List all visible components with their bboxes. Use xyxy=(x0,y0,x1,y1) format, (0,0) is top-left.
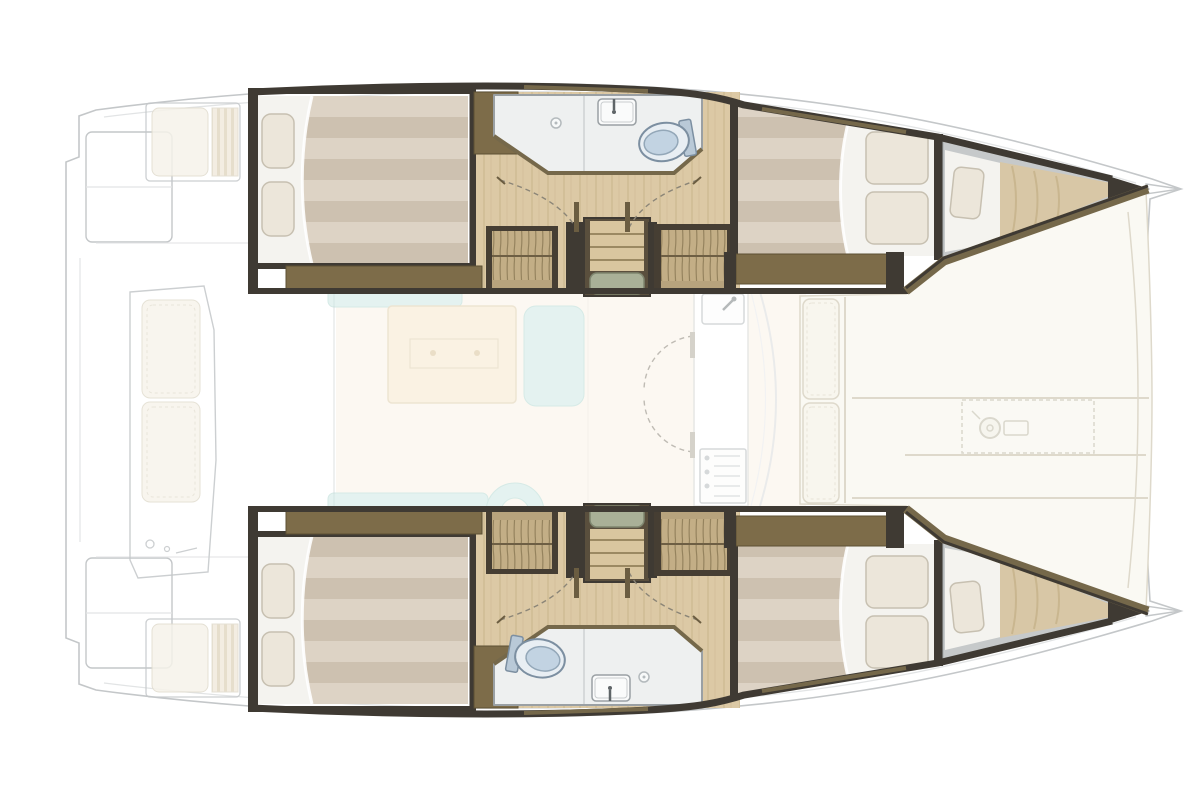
door-leaf-bottom xyxy=(690,432,695,458)
bench-cushion xyxy=(152,108,208,176)
pillow-1 xyxy=(262,114,294,168)
sink-faucet-base xyxy=(732,297,737,302)
wardrobe-base xyxy=(492,280,552,289)
pillow-2 xyxy=(262,182,294,236)
cockpit-bench-top xyxy=(146,103,240,181)
cockpit-aft-bench xyxy=(130,286,216,578)
forepeak-pillow xyxy=(949,167,984,220)
sink xyxy=(598,99,636,125)
hull-aft-wall xyxy=(248,90,258,294)
forward-bench-cushion-2 xyxy=(803,403,839,503)
table-fitting-2 xyxy=(474,350,480,356)
cockpit-bench-bottom xyxy=(146,619,240,697)
windlass-icon xyxy=(980,418,1000,438)
stove-knob-1 xyxy=(705,456,710,461)
door-leaf-right xyxy=(625,202,630,232)
fwd-cabin-right-wall xyxy=(934,134,943,260)
fwd-block-left xyxy=(724,252,736,292)
fwd-berth-mattress xyxy=(736,106,854,256)
cockpit-fitting-1 xyxy=(146,540,154,548)
wardrobe-right xyxy=(654,224,734,292)
fwd-cabin-left-wall xyxy=(730,100,738,258)
cockpit-fitting-2 xyxy=(165,547,170,552)
fwd-pillow-2 xyxy=(866,192,928,244)
berth-step xyxy=(286,266,482,290)
door-leaf-left xyxy=(574,202,579,232)
fwd-berth-shelf xyxy=(736,254,888,284)
aft-berth-mattress xyxy=(298,96,468,264)
dinette-table xyxy=(388,306,516,403)
windlass-locker xyxy=(962,400,1094,453)
wardrobe-left xyxy=(486,226,558,292)
stove-knob-3 xyxy=(705,484,710,489)
sink-faucet-base xyxy=(608,686,612,690)
cockpit-fitting-3 xyxy=(176,548,197,553)
fwd-block-right xyxy=(886,252,904,290)
fwd-pillow-1 xyxy=(866,132,928,184)
shower-drain-dot xyxy=(643,676,646,679)
table-fitting-1 xyxy=(430,350,436,356)
companionway-stairs xyxy=(584,218,650,296)
floor-plan-svg xyxy=(0,0,1200,800)
catamaran-floor-plan xyxy=(0,0,1200,800)
forward-bench-cushion-1 xyxy=(803,299,839,399)
bench-slats xyxy=(212,108,238,176)
salon xyxy=(328,288,806,512)
door-leaf-top xyxy=(690,332,695,358)
bow-sprit xyxy=(1146,184,1180,194)
bench-cushion xyxy=(152,624,208,692)
galley xyxy=(694,290,748,506)
sink-faucet-base xyxy=(612,110,616,114)
bench-slats xyxy=(212,624,238,692)
forward-cabin xyxy=(724,100,943,292)
shower-drain-dot xyxy=(555,122,558,125)
settee-chaise xyxy=(524,306,584,406)
stove-knob-2 xyxy=(705,470,710,475)
aft-bench-cushion-2 xyxy=(142,402,200,502)
aft-bench-cushion-1 xyxy=(142,300,200,398)
